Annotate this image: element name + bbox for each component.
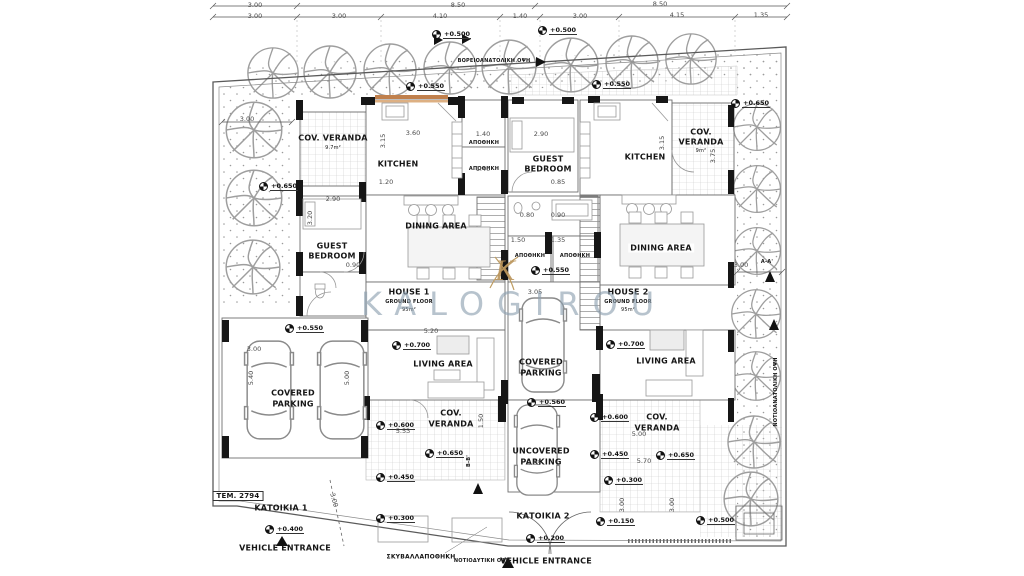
- spot-level: +0.500: [696, 516, 735, 525]
- spot-level: +0.650: [731, 99, 770, 108]
- spot-level: +0.600: [590, 413, 629, 422]
- room-label-living-h1: LIVING AREA: [413, 360, 473, 369]
- room-label-cov-veranda-bottom-h1: VERANDA: [429, 420, 474, 429]
- elevation-view-ne: ΒΟΡΕΙΟΑΝΑΤΟΛΙΚΗ ΟΨΗ: [458, 58, 531, 64]
- elevation-view-se: ΝΟΤΙΟΑΝΑΤΟΛΙΚΗ ΟΨΗ: [773, 357, 779, 426]
- section-mark-aa: Α-Α': [761, 259, 773, 265]
- room-label-covered-parking-h1: COVERED: [271, 389, 315, 398]
- level-icon: [656, 451, 665, 460]
- room-label-dining-h2: DINING AREA: [628, 244, 694, 253]
- dimension-label: 8.50: [653, 0, 667, 8]
- dimension-label: 3.05: [527, 459, 541, 467]
- dimension-label: 1.40: [476, 165, 490, 173]
- dimension-label: 5.00: [632, 430, 646, 438]
- spot-level: +0.550: [531, 266, 570, 275]
- spot-level: +0.450: [590, 450, 629, 459]
- dimension-label: 3.75: [709, 149, 717, 163]
- dimension-label: 8.50: [451, 1, 465, 9]
- dimension-label: 3.00: [248, 1, 262, 9]
- spot-level: +0.400: [265, 525, 304, 534]
- floor-plan-page: 3.00 8.50 8.50 3.00 3.00 4.10 1.40 3.00 …: [0, 0, 1024, 576]
- spot-level: +0.550: [285, 324, 324, 333]
- room-label-kitchen-h2: KITCHEN: [625, 153, 666, 162]
- room-label-covered-parking-h2: PARKING: [520, 369, 561, 378]
- dimension-label: 1.50: [511, 236, 525, 244]
- spot-level: +0.300: [376, 514, 415, 523]
- room-label-guest-bedroom-h1: GUEST: [317, 242, 348, 251]
- room-label-cov-veranda-bottom-h2: COV.: [646, 413, 667, 422]
- dimension-label: 4.10: [433, 12, 447, 20]
- room-label-covered-parking-h1: PARKING: [272, 400, 313, 409]
- room-label-cov-veranda-h2: COV.: [690, 128, 711, 137]
- room-label-storage: ΑΠΟΘΗΚΗ: [515, 253, 545, 259]
- site-label-vehicle-entrance-2: VEHICLE ENTRANCE: [500, 557, 592, 566]
- level-icon: [432, 30, 441, 39]
- room-label-cov-veranda-h1: COV. VERANDA: [298, 134, 367, 143]
- room-label-covered-parking-h2: COVERED: [519, 358, 563, 367]
- dimension-label: 1.40: [476, 130, 490, 138]
- watermark-brand: KALOGIROU: [361, 285, 667, 323]
- level-icon: [527, 398, 536, 407]
- site-label-katoikia1: ΚΑΤΟΙΚΙΑ 1: [254, 504, 307, 513]
- level-icon: [604, 476, 613, 485]
- dimension-label: 3.15: [658, 136, 666, 150]
- dimension-label: 3.00: [332, 12, 346, 20]
- level-icon: [376, 514, 385, 523]
- dimension-label: 3.00: [247, 345, 261, 353]
- dimension-label: 5.53: [396, 427, 410, 435]
- level-icon: [376, 421, 385, 430]
- room-label-cov-veranda-h2: VERANDA: [679, 138, 724, 147]
- plot-number: ΤΕΜ. 2794: [213, 491, 264, 501]
- room-label-kitchen-h1: KITCHEN: [378, 160, 419, 169]
- room-label-dining-h1: DINING AREA: [405, 222, 467, 231]
- level-icon: [265, 525, 274, 534]
- dimension-label: 3.00: [734, 261, 748, 269]
- dimension-label: 5.40: [247, 371, 255, 385]
- section-mark-bb: Β-Β': [466, 455, 472, 467]
- level-icon: [406, 82, 415, 91]
- dimension-label: 4.15: [670, 11, 684, 19]
- dimension-label: 0.85: [551, 178, 565, 186]
- level-icon: [538, 26, 547, 35]
- dimension-label: 5.70: [637, 457, 651, 465]
- room-label-storage: ΑΠΟΘΗΚΗ: [469, 140, 499, 146]
- room-label-cov-veranda-bottom-h1: COV.: [440, 409, 461, 418]
- level-icon: [590, 413, 599, 422]
- dimension-label: 3.00: [618, 498, 626, 512]
- level-icon: [590, 450, 599, 459]
- dimension-label: 0.90: [551, 211, 565, 219]
- level-icon: [606, 340, 615, 349]
- room-label-uncovered-parking: UNCOVERED: [512, 447, 569, 456]
- room-area-cov-veranda-h1: 9.7m²: [325, 145, 341, 151]
- dimension-label: 3.60: [406, 129, 420, 137]
- level-icon: [526, 534, 535, 543]
- level-icon: [259, 182, 268, 191]
- dimension-label: 2.90: [326, 195, 340, 203]
- elevation-view-sw: ΝΟΤΙΟΔΥΤΙΚΗ ΟΨΗ: [454, 558, 510, 564]
- level-icon: [285, 324, 294, 333]
- spot-level: +0.500: [538, 26, 577, 35]
- spot-level: +0.550: [592, 80, 631, 89]
- room-label-guest-bedroom-h2: GUEST: [533, 155, 564, 164]
- dimension-label: 1.20: [379, 178, 393, 186]
- dimension-label: 3.00: [668, 498, 676, 512]
- room-label-guest-bedroom-h2: BEDROOM: [524, 165, 571, 174]
- spot-level: +0.700: [606, 340, 645, 349]
- dimension-label: 1.35: [551, 236, 565, 244]
- level-icon: [696, 516, 705, 525]
- spot-level: +0.650: [656, 451, 695, 460]
- dimension-label: 3.00: [240, 115, 254, 123]
- level-icon: [376, 473, 385, 482]
- spot-level: +0.300: [604, 476, 643, 485]
- deck-strips: [375, 95, 448, 103]
- dimension-label: 1.40: [513, 12, 527, 20]
- spot-level: +0.150: [596, 517, 635, 526]
- room-area-cov-veranda-h2: 9m²: [696, 148, 707, 154]
- level-icon: [425, 449, 434, 458]
- spot-level: +0.550: [406, 82, 445, 91]
- spot-level: +0.200: [526, 534, 565, 543]
- dimension-label: 1.35: [754, 11, 768, 19]
- room-label-guest-bedroom-h1: BEDROOM: [308, 252, 355, 261]
- room-label-storage: ΑΠΟΘΗΚΗ: [560, 253, 590, 259]
- site-label-garbage-store: ΣΚΥΒΑΛΛΑΠΟΘΗΚΗ: [387, 554, 456, 561]
- level-icon: [731, 99, 740, 108]
- spot-level: +0.700: [392, 341, 431, 350]
- room-label-living-h2: LIVING AREA: [636, 357, 696, 366]
- dimension-label: 2.90: [534, 130, 548, 138]
- dimension-label: 3.00: [248, 12, 262, 20]
- spot-level: +0.560: [527, 398, 566, 407]
- site-label-vehicle-entrance-1: VEHICLE ENTRANCE: [239, 544, 331, 553]
- dimension-label: 3.15: [379, 134, 387, 148]
- dimension-label: 0.80: [520, 211, 534, 219]
- dimension-label: 3.20: [306, 211, 314, 225]
- level-icon: [531, 266, 540, 275]
- dimension-label: 5.20: [424, 327, 438, 335]
- spot-level: +0.650: [259, 182, 298, 191]
- spot-level: +0.500: [432, 30, 471, 39]
- watermark-monogram: K: [495, 254, 515, 288]
- spot-level: +0.650: [425, 449, 464, 458]
- level-icon: [596, 517, 605, 526]
- level-icon: [392, 341, 401, 350]
- dimension-label: 1.50: [477, 414, 485, 428]
- site-label-katoikia2: ΚΑΤΟΙΚΙΑ 2: [516, 512, 569, 521]
- spot-level: +0.450: [376, 473, 415, 482]
- dimension-label: 5.00: [343, 371, 351, 385]
- dimension-label: 0.90: [346, 261, 360, 269]
- dimension-label: 3.00: [573, 12, 587, 20]
- level-icon: [592, 80, 601, 89]
